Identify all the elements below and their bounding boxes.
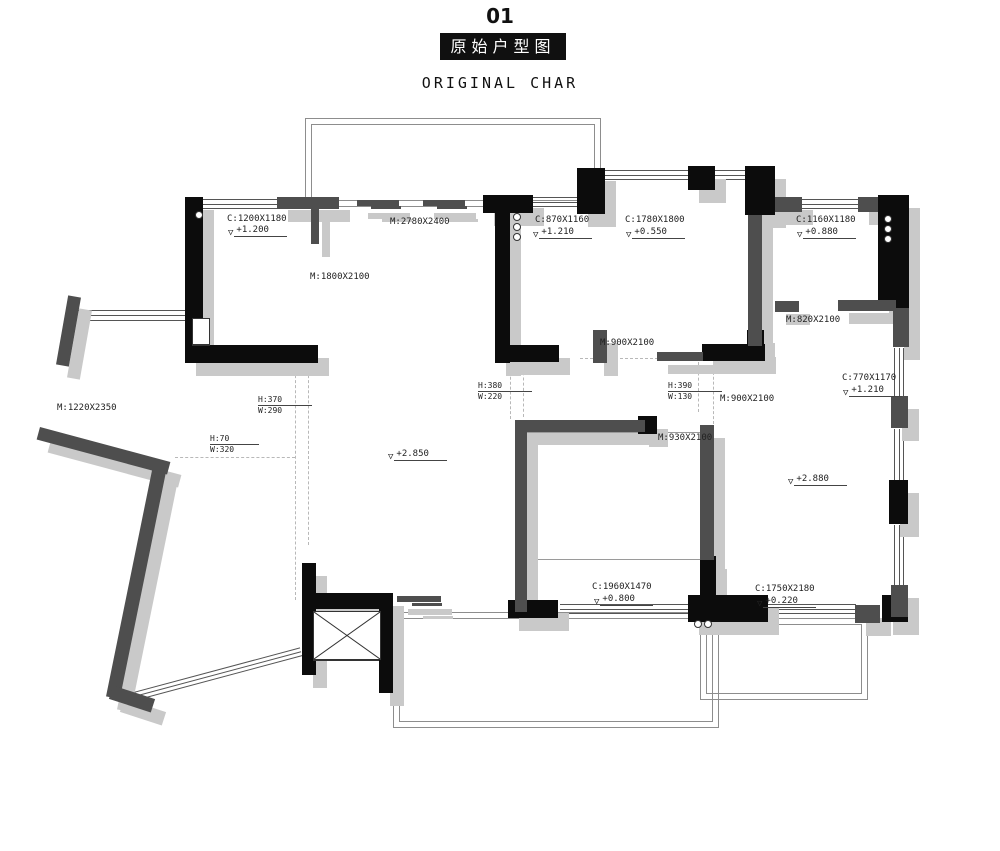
beam-size-label: H:390W:130 xyxy=(668,381,722,402)
annotations-layer: C:1200X1180 ▽+1.200 M:1800X2100 M:2780X2… xyxy=(0,0,1000,851)
level-value: +1.200 xyxy=(234,225,287,237)
beam-size-label: H:370W:290 xyxy=(258,395,312,416)
window-size-label: C:1780X1800 xyxy=(625,215,685,225)
beam-height: H:70 xyxy=(210,434,259,445)
beam-width: W:290 xyxy=(258,406,312,416)
level-mark: ▽+2.850 xyxy=(388,449,447,461)
level-value: +2.850 xyxy=(394,449,447,461)
level-triangle-icon: ▽ xyxy=(626,231,631,240)
window-size-label: C:1200X1180 xyxy=(227,214,287,224)
level-value: +0.880 xyxy=(803,227,856,239)
window-size-label: C:1160X1180 xyxy=(796,215,856,225)
level-triangle-icon: ▽ xyxy=(757,600,762,609)
beam-size-label: H:70W:320 xyxy=(210,434,259,455)
level-value: +0.800 xyxy=(600,594,653,606)
level-value: +1.210 xyxy=(849,385,902,397)
beam-width: W:130 xyxy=(668,392,722,402)
level-mark: ▽+0.220 xyxy=(757,596,816,608)
floor-plan-sheet: 01 原始户型图 ORIGINAL CHAR xyxy=(0,0,1000,851)
level-triangle-icon: ▽ xyxy=(388,453,393,462)
window-size-label: C:770X1170 xyxy=(842,373,896,383)
door-size-label: M:900X2100 xyxy=(720,394,774,404)
beam-height: H:390 xyxy=(668,381,722,392)
level-mark: ▽+0.800 xyxy=(594,594,653,606)
window-size-label: C:1750X2180 xyxy=(755,584,815,594)
level-mark: ▽+0.550 xyxy=(626,227,685,239)
door-size-label: M:1220X2350 xyxy=(57,403,117,413)
level-value: +1.210 xyxy=(539,227,592,239)
window-size-label: C:1960X1470 xyxy=(592,582,652,592)
beam-width: W:220 xyxy=(478,392,532,402)
level-value: +0.220 xyxy=(763,596,816,608)
level-triangle-icon: ▽ xyxy=(797,231,802,240)
door-size-label: M:930X2100 xyxy=(658,433,712,443)
level-triangle-icon: ▽ xyxy=(788,478,793,487)
level-value: +2.880 xyxy=(794,474,847,486)
level-mark: ▽+1.210 xyxy=(843,385,902,397)
door-size-label: M:2780X2400 xyxy=(390,217,450,227)
level-triangle-icon: ▽ xyxy=(843,389,848,398)
window-size-label: C:870X1160 xyxy=(535,215,589,225)
level-mark: ▽+0.880 xyxy=(797,227,856,239)
level-triangle-icon: ▽ xyxy=(594,598,599,607)
level-value: +0.550 xyxy=(632,227,685,239)
level-mark: ▽+1.210 xyxy=(533,227,592,239)
beam-height: H:380 xyxy=(478,381,532,392)
beam-width: W:320 xyxy=(210,445,259,455)
level-triangle-icon: ▽ xyxy=(228,229,233,238)
door-size-label: M:1800X2100 xyxy=(310,272,370,282)
beam-size-label: H:380W:220 xyxy=(478,381,532,402)
door-size-label: M:900X2100 xyxy=(600,338,654,348)
door-size-label: M:820X2100 xyxy=(786,315,840,325)
level-mark: ▽+1.200 xyxy=(228,225,287,237)
level-triangle-icon: ▽ xyxy=(533,231,538,240)
level-mark: ▽+2.880 xyxy=(788,474,847,486)
beam-height: H:370 xyxy=(258,395,312,406)
